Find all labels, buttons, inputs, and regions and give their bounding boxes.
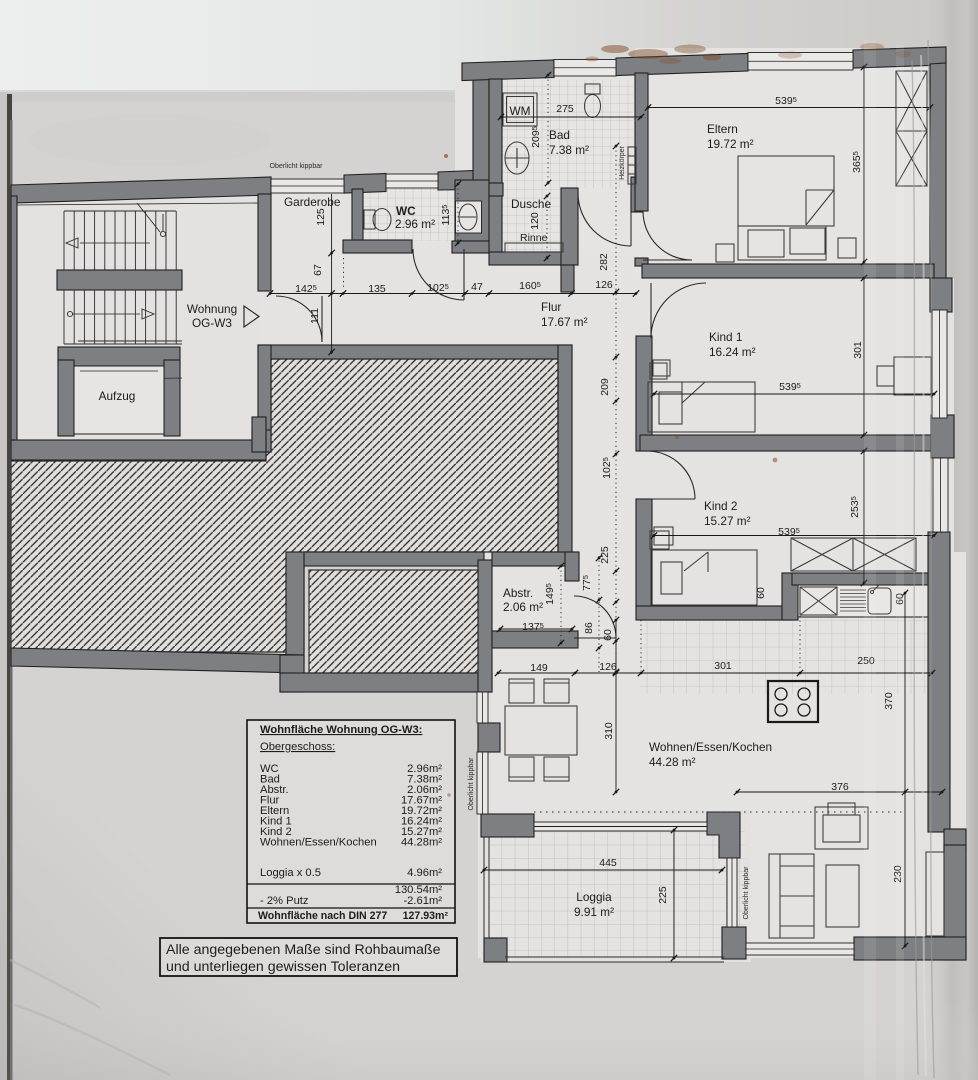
svg-text:86: 86 xyxy=(583,622,595,634)
svg-text:Heizkörper: Heizkörper xyxy=(619,145,626,180)
svg-text:120: 120 xyxy=(529,212,541,230)
svg-text:310: 310 xyxy=(603,722,615,740)
svg-text:Kind 2: Kind 2 xyxy=(704,499,737,513)
svg-text:Dusche: Dusche xyxy=(511,197,551,211)
svg-text:209: 209 xyxy=(599,378,611,396)
svg-text:301: 301 xyxy=(714,660,732,672)
svg-text:445: 445 xyxy=(599,857,617,869)
svg-text:15.27 m²: 15.27 m² xyxy=(704,514,751,528)
svg-text:Kind 1: Kind 1 xyxy=(709,330,742,344)
svg-text:47: 47 xyxy=(471,281,483,293)
svg-text:282: 282 xyxy=(598,253,610,271)
svg-text:Flur: Flur xyxy=(541,300,561,314)
svg-text:WC: WC xyxy=(396,204,416,218)
svg-text:376: 376 xyxy=(831,781,849,793)
svg-text:7.38 m²: 7.38 m² xyxy=(549,143,589,157)
svg-text:Oberlicht kippbar: Oberlicht kippbar xyxy=(743,866,750,920)
svg-text:135: 135 xyxy=(368,283,386,295)
svg-text:125: 125 xyxy=(315,208,327,226)
svg-text:301: 301 xyxy=(852,341,864,359)
svg-text:9.91 m²: 9.91 m² xyxy=(574,905,614,919)
svg-text:Bad: Bad xyxy=(549,128,570,142)
svg-text:Rinne: Rinne xyxy=(520,232,548,244)
svg-text:Aufzug: Aufzug xyxy=(99,389,136,403)
svg-text:17.67 m²: 17.67 m² xyxy=(541,315,588,329)
svg-text:2.06 m²: 2.06 m² xyxy=(503,600,543,614)
svg-text:111: 111 xyxy=(309,308,321,324)
svg-text:67: 67 xyxy=(312,264,324,276)
svg-text:Wohnen/Essen/Kochen: Wohnen/Essen/Kochen xyxy=(649,740,772,754)
svg-text:Oberlicht kippbar: Oberlicht kippbar xyxy=(270,163,324,170)
svg-text:Eltern: Eltern xyxy=(707,122,738,136)
svg-text:275: 275 xyxy=(556,103,574,115)
svg-text:WM: WM xyxy=(510,104,531,118)
svg-text:Loggia: Loggia xyxy=(576,890,612,904)
svg-text:Wohnung: Wohnung xyxy=(187,302,237,316)
svg-text:OG-W3: OG-W3 xyxy=(192,316,232,330)
svg-text:225: 225 xyxy=(599,546,611,564)
svg-text:2.96 m²: 2.96 m² xyxy=(395,217,435,231)
svg-text:60: 60 xyxy=(602,629,614,641)
svg-text:44.28 m²: 44.28 m² xyxy=(649,755,696,769)
svg-text:126: 126 xyxy=(595,279,613,291)
svg-text:370: 370 xyxy=(883,692,895,710)
svg-text:16.24 m²: 16.24 m² xyxy=(709,345,756,359)
svg-text:Oberlicht kippbar: Oberlicht kippbar xyxy=(468,757,475,811)
svg-text:19.72 m²: 19.72 m² xyxy=(707,137,754,151)
svg-text:126: 126 xyxy=(599,661,617,673)
svg-text:225: 225 xyxy=(657,886,669,904)
svg-text:60: 60 xyxy=(755,587,767,599)
svg-text:149: 149 xyxy=(530,662,548,674)
svg-text:Garderobe: Garderobe xyxy=(284,195,341,209)
svg-text:Abstr.: Abstr. xyxy=(503,586,533,600)
